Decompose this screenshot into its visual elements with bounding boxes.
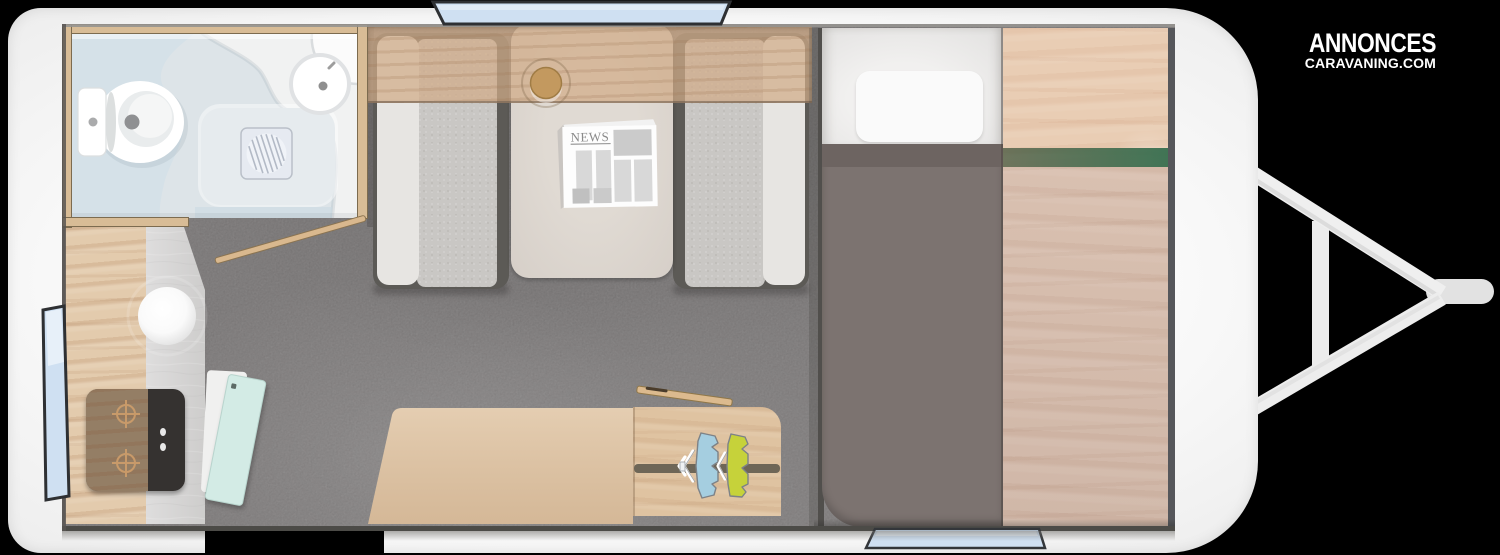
svg-text:NEWS: NEWS xyxy=(570,129,609,145)
